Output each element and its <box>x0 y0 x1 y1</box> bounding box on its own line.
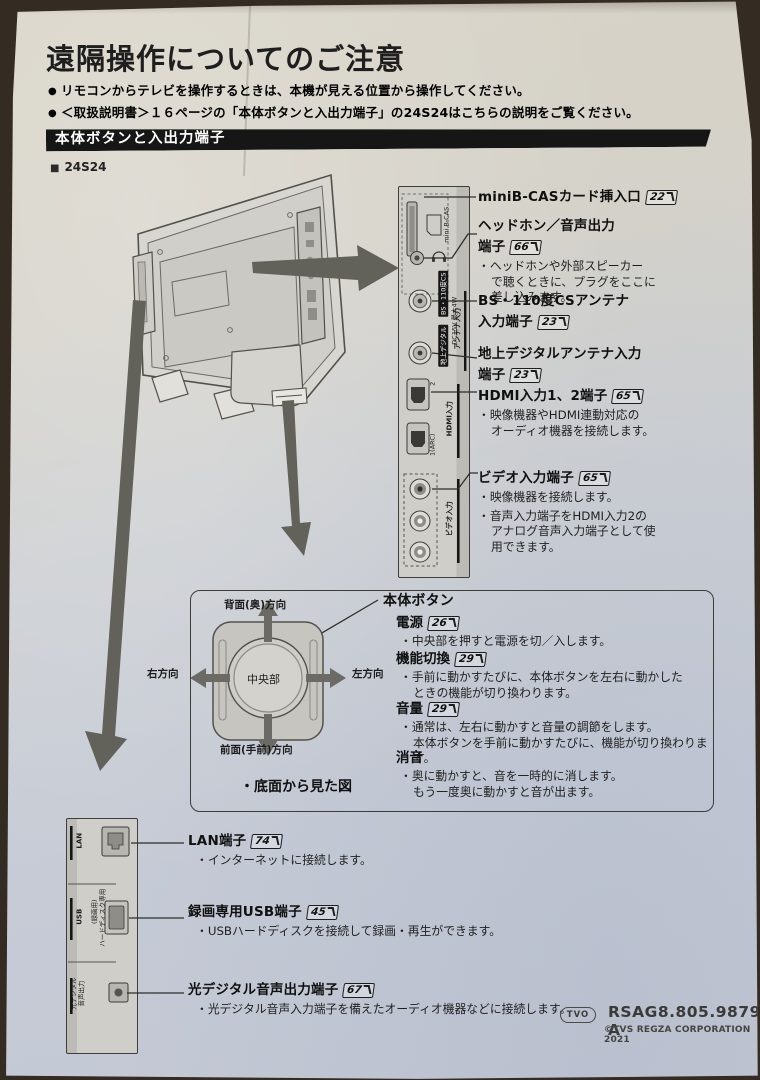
page-ref-badge: 29 <box>427 702 460 717</box>
terminal-lan: LAN端子74 インターネットに接続します。 <box>188 830 548 869</box>
page-ref-badge: 26 <box>427 616 460 631</box>
panel-label-hdd: ハードディスク専用 <box>99 883 107 953</box>
panel-label-optical: 光デジタル 音声出力 <box>71 972 86 1016</box>
panel-label-antenna: アンテナ入力 <box>454 299 462 359</box>
panel-label-hdmi-group: HDMI入力 <box>446 391 454 447</box>
page-ref-badge: 74 <box>250 834 283 849</box>
headphone-icon <box>433 252 445 258</box>
page-ref-badge: 67 <box>342 983 375 998</box>
terminal-video: ビデオ入力端子65 映像機器を接続します。 音声入力端子をHDMI入力2の アナ… <box>478 467 698 555</box>
panel-label-lan: LAN <box>76 826 84 856</box>
arrow-to-button-diagram <box>281 400 311 556</box>
terminal-label: miniB-CASカード挿入口 <box>478 189 641 205</box>
panel-label-terrestrial: 地上デジタル <box>440 321 448 371</box>
page-ref-badge: 29 <box>454 652 487 667</box>
page-ref-badge: 23 <box>509 368 542 383</box>
page-ref-badge: 66 <box>509 240 542 255</box>
terminal-terrestrial: 地上デジタルアンテナ入力 端子23 <box>478 346 642 384</box>
terminal-hdmi: HDMI入力1、2端子65 映像機器やHDMI連動対応の オーディオ機器を接続し… <box>478 385 698 439</box>
fn-function-switch: 機能切換29 手前に動かすたびに、本体ボタンを左右に動かした ときの機能が切り換… <box>396 647 716 701</box>
page-ref-badge: 22 <box>645 190 678 205</box>
diagram-dir-right: 左方向 <box>352 666 384 681</box>
terminal-minibcas: miniB-CASカード挿入口22 <box>478 186 679 206</box>
page-ref-badge: 23 <box>537 315 570 330</box>
page-ref-badge: 65 <box>611 389 644 404</box>
diagram-caption: ・底面から見た図 <box>240 776 352 796</box>
fn-power: 電源26 中央部を押すと電源を切／入します。 <box>396 611 708 650</box>
terminal-usb: 録画専用USB端子45 USBハードディスクを接続して録画・再生ができます。 <box>188 901 588 940</box>
page-ref-badge: 45 <box>306 905 339 920</box>
panel-label-minibcas: mini B-CAS <box>443 202 451 248</box>
page-ref-badge: 65 <box>578 471 611 486</box>
diagram-center-label: 中央部 <box>247 671 280 687</box>
panel-label-hdmi2: 2 <box>429 376 437 392</box>
diagram-dir-top: 背面(奥)方向 <box>224 597 286 612</box>
terminal-bs-cs: BS・110度CSアンテナ 入力端子23 <box>478 293 629 331</box>
fn-mute: 消音 奥に動かすと、音を一時的に消します。 もう一度奥に動かすと音が出ます。 <box>396 746 716 800</box>
arrow-to-bottom-panel-long <box>85 300 146 771</box>
panel-label-video-group: ビデオ入力 <box>446 494 454 544</box>
terminal-label: ヘッドホン／音声出力 <box>478 218 688 235</box>
diagram-dir-bottom: 前面(手前)方向 <box>220 742 293 757</box>
panel-label-bs: BS・110度CS <box>440 265 448 323</box>
copyright: ©TVS REGZA CORPORATION 2021 <box>604 1025 760 1045</box>
tv-rear-illustration <box>133 175 345 419</box>
diagram-dir-left: 右方向 <box>147 666 179 681</box>
tvo-badge: TVO <box>560 1007 596 1023</box>
button-section-title: 本体ボタン <box>383 593 454 610</box>
panel-label-hdmi1: 1(ARC) <box>429 430 437 460</box>
manual-page: 遠隔操作についてのご注意 リモコンからテレビを操作するときは、本機が見える位置か… <box>0 0 760 1080</box>
panel-label-usb: USB <box>76 902 84 932</box>
